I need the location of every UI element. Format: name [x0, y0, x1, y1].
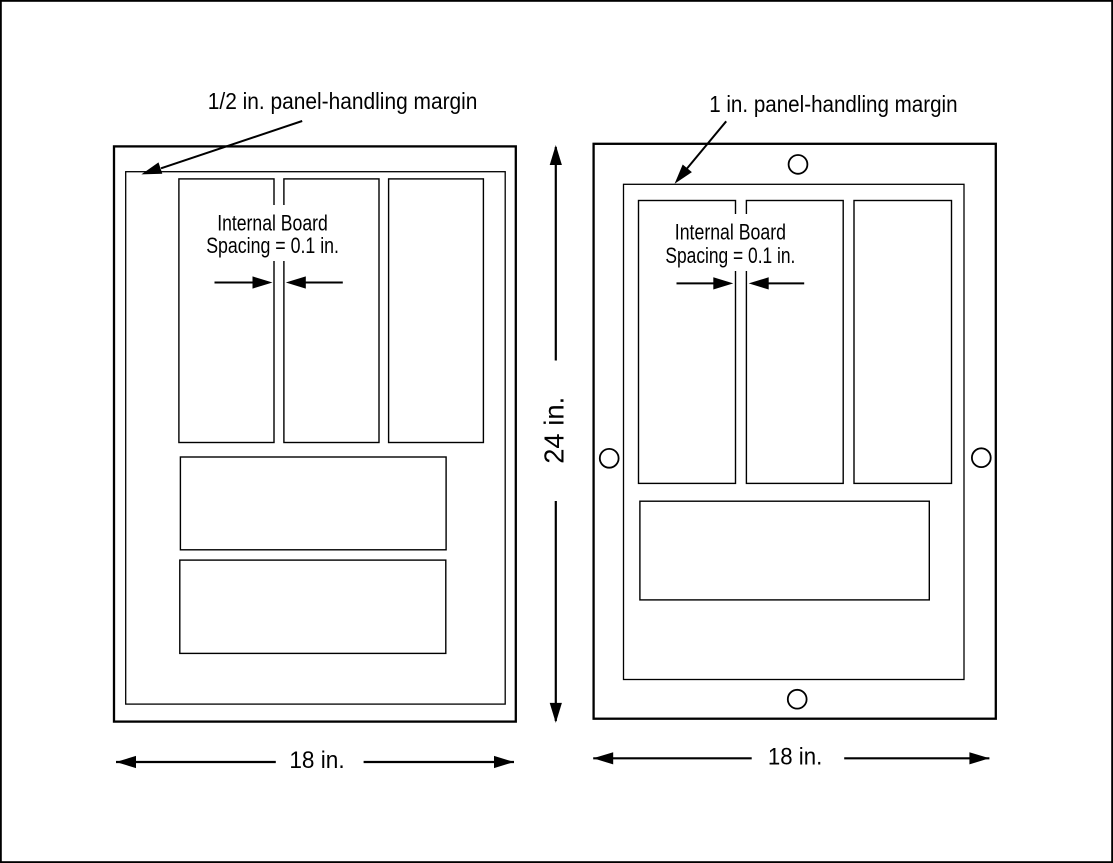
svg-text:Spacing = 0.1 in.: Spacing = 0.1 in. [665, 243, 795, 268]
svg-text:1 in. panel-handling margin: 1 in. panel-handling margin [709, 91, 957, 117]
svg-text:24 in.: 24 in. [538, 397, 569, 464]
svg-text:Internal Board: Internal Board [675, 219, 786, 244]
svg-text:18 in.: 18 in. [289, 747, 344, 774]
svg-text:Internal Board: Internal Board [217, 211, 328, 236]
svg-text:18 in.: 18 in. [768, 744, 822, 771]
svg-text:Spacing = 0.1 in.: Spacing = 0.1 in. [206, 233, 339, 258]
svg-text:1/2 in. panel-handling margin: 1/2 in. panel-handling margin [208, 88, 478, 114]
